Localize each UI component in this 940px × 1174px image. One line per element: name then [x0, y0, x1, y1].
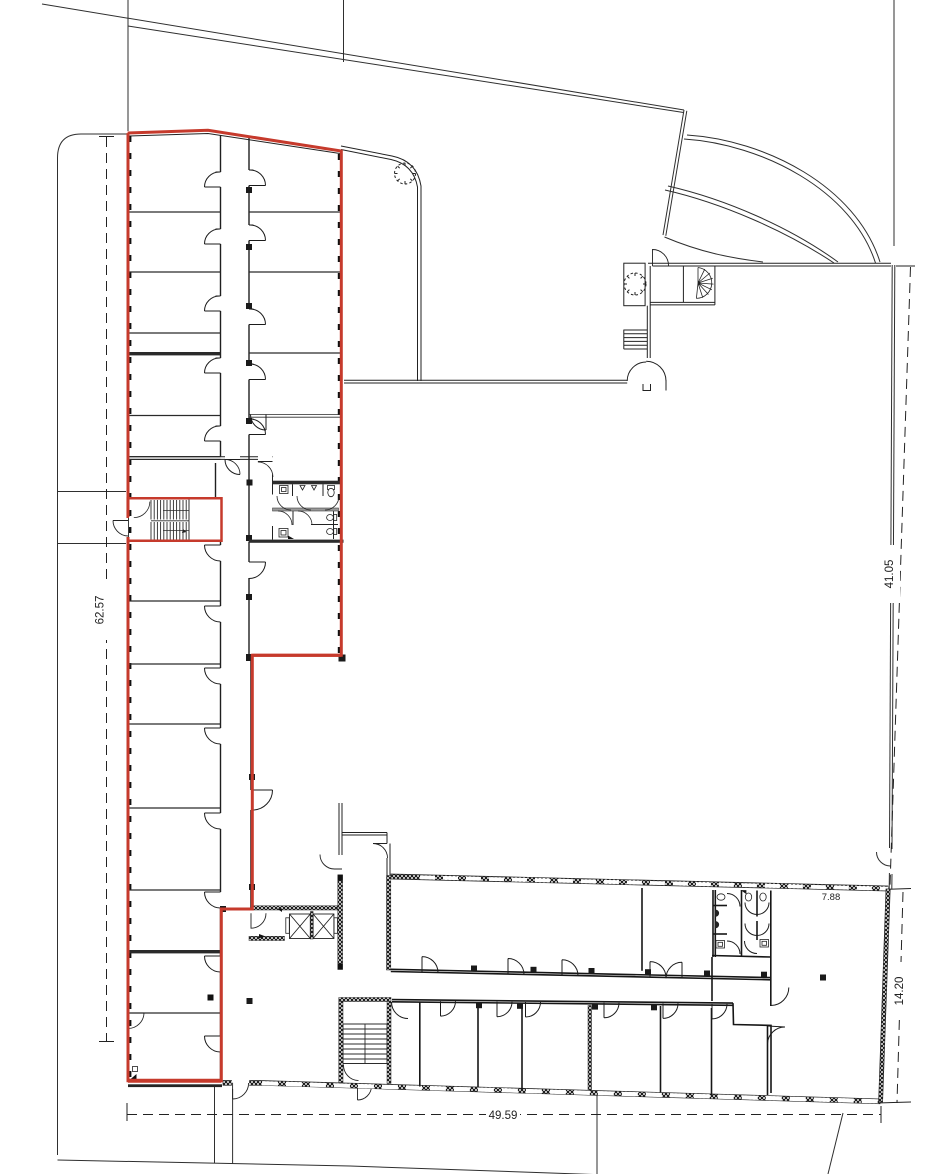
svg-text:49.59: 49.59	[489, 1110, 518, 1122]
svg-text:14.20: 14.20	[894, 977, 906, 1006]
svg-text:41.05: 41.05	[884, 560, 896, 589]
svg-text:62.57: 62.57	[95, 596, 107, 625]
svg-text:7.88: 7.88	[822, 892, 841, 903]
